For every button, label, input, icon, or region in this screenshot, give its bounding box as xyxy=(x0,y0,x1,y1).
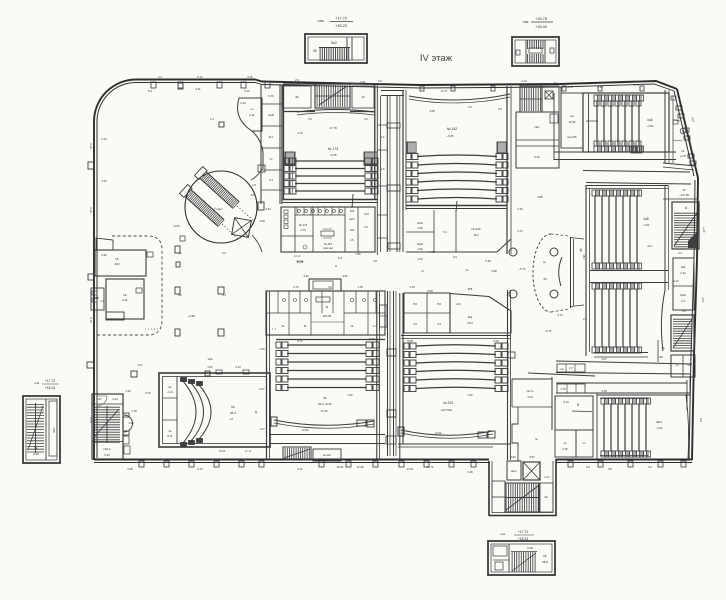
svg-text:2.4: 2.4 xyxy=(269,178,273,182)
svg-text:~4.52: ~4.52 xyxy=(656,426,663,430)
svg-text:1.2: 1.2 xyxy=(381,135,385,139)
svg-text:~14.5 62м: ~14.5 62м xyxy=(440,408,453,412)
svg-text:5.71: 5.71 xyxy=(167,434,173,438)
svg-text:13.96: 13.96 xyxy=(302,428,309,432)
svg-text:ж: ж xyxy=(335,264,337,268)
svg-text:2.25: 2.25 xyxy=(33,452,39,456)
svg-text:6.67: 6.67 xyxy=(259,387,265,391)
svg-text:№ 142: № 142 xyxy=(447,127,457,131)
svg-text:3.18: 3.18 xyxy=(597,85,603,89)
svg-text:152: 152 xyxy=(350,228,355,232)
svg-text:№6: №6 xyxy=(647,118,652,122)
svg-text:5.13: 5.13 xyxy=(563,400,569,404)
svg-text:~4.52: ~4.52 xyxy=(643,223,650,227)
svg-text:4.34: 4.34 xyxy=(101,179,107,183)
svg-text:26: 26 xyxy=(662,346,665,350)
svg-text:№9: №9 xyxy=(681,265,686,269)
svg-text:4.07: 4.07 xyxy=(250,193,256,197)
svg-text:2.11: 2.11 xyxy=(249,113,255,117)
svg-text:со: со xyxy=(270,158,273,161)
svg-text:5.8: 5.8 xyxy=(682,309,686,313)
svg-text:13.91: 13.91 xyxy=(407,467,414,471)
svg-text:6.70: 6.70 xyxy=(197,467,203,471)
svg-text:2.4: 2.4 xyxy=(678,251,682,255)
svg-text:1.53: 1.53 xyxy=(363,212,369,216)
svg-text:тд: тд xyxy=(543,261,546,264)
svg-text:16.44: 16.44 xyxy=(337,465,344,469)
svg-text:2.46: 2.46 xyxy=(517,207,523,211)
svg-text:2.11: 2.11 xyxy=(122,298,128,302)
svg-text:отм.: отм. xyxy=(317,19,324,23)
svg-text:+18.25: +18.25 xyxy=(45,386,55,390)
svg-text:~9: ~9 xyxy=(420,269,424,273)
svg-text:№17: №17 xyxy=(349,217,355,221)
svg-text:2.43: 2.43 xyxy=(235,365,241,369)
svg-text:5.0: 5.0 xyxy=(699,418,703,422)
svg-text:4.8: 4.8 xyxy=(373,259,377,263)
svg-text:ПЗ: ПЗ xyxy=(413,302,417,306)
svg-text:№: № xyxy=(169,386,172,389)
svg-text:1.9: 1.9 xyxy=(100,299,104,303)
svg-text:№ 243: № 243 xyxy=(471,227,480,231)
svg-text:5.40: 5.40 xyxy=(534,155,540,159)
svg-text:204.06: 204.06 xyxy=(323,314,332,318)
svg-text:№ 173: № 173 xyxy=(299,223,308,227)
svg-text:4.1: 4.1 xyxy=(222,293,226,297)
svg-text:ПЗ: ПЗ xyxy=(437,302,441,306)
svg-text:2.10: 2.10 xyxy=(101,137,107,141)
svg-text:№-2.56: №-2.56 xyxy=(567,135,577,139)
svg-text:36.9: 36.9 xyxy=(542,560,548,564)
svg-text:5.43: 5.43 xyxy=(89,417,93,423)
svg-text:~9.45: ~9.45 xyxy=(329,153,337,157)
svg-text:3.3: 3.3 xyxy=(364,117,368,121)
svg-text:5.4: 5.4 xyxy=(338,256,342,260)
svg-text:№: № xyxy=(231,405,235,409)
svg-text:5.4: 5.4 xyxy=(148,89,152,93)
svg-text:п5: п5 xyxy=(351,238,354,242)
svg-text:1.28: 1.28 xyxy=(128,421,134,425)
svg-text:3.0: 3.0 xyxy=(328,285,332,289)
svg-text:4.92: 4.92 xyxy=(342,274,348,278)
svg-text:4.33: 4.33 xyxy=(303,274,309,278)
svg-text:+17.72: +17.72 xyxy=(335,17,347,21)
svg-text:+4.57: +4.57 xyxy=(680,154,687,158)
svg-text:№31: №31 xyxy=(417,221,424,225)
svg-text:5.0: 5.0 xyxy=(308,117,312,121)
svg-text:+16.75: +16.75 xyxy=(535,17,547,21)
svg-text:№3.2: №3.2 xyxy=(104,447,111,451)
svg-text:1.07: 1.07 xyxy=(259,427,265,431)
svg-text:2.17: 2.17 xyxy=(544,475,550,479)
svg-text:5.76: 5.76 xyxy=(145,391,151,395)
svg-text:17.76: 17.76 xyxy=(329,126,337,130)
svg-text:9.11: 9.11 xyxy=(297,467,303,471)
svg-text:4.08: 4.08 xyxy=(259,219,265,223)
svg-text:тех: тех xyxy=(570,114,575,118)
svg-text:№: № xyxy=(323,396,327,400)
svg-text:18: 18 xyxy=(254,411,258,414)
svg-text:8а: 8а xyxy=(179,293,182,297)
svg-text:3.44: 3.44 xyxy=(527,395,533,399)
svg-text:1.40: 1.40 xyxy=(455,302,461,306)
svg-text:4.07: 4.07 xyxy=(601,357,607,361)
svg-text:5.16: 5.16 xyxy=(244,89,250,93)
svg-text:4.30: 4.30 xyxy=(347,393,353,397)
svg-text:~5.75: ~5.75 xyxy=(545,329,552,333)
svg-text:4.76: 4.76 xyxy=(557,313,563,317)
svg-text:1.78: 1.78 xyxy=(357,285,363,289)
svg-text:№ 121: № 121 xyxy=(323,453,332,457)
svg-text:17.02: 17.02 xyxy=(321,409,328,413)
svg-text:6.50: 6.50 xyxy=(493,339,499,343)
svg-text:№: № xyxy=(351,325,354,328)
svg-text:18.4: 18.4 xyxy=(582,254,586,260)
svg-text:5.15: 5.15 xyxy=(247,75,253,79)
svg-text:№2: №2 xyxy=(331,41,337,45)
svg-text:5.43: 5.43 xyxy=(104,453,110,457)
svg-text:15.2: 15.2 xyxy=(473,233,479,237)
svg-text:1.86: 1.86 xyxy=(52,427,56,433)
svg-text:14.1: 14.1 xyxy=(268,135,274,139)
svg-text:~4.52: ~4.52 xyxy=(647,124,654,128)
svg-text:2.14: 2.14 xyxy=(167,390,173,394)
svg-text:2.7: 2.7 xyxy=(569,366,573,370)
svg-text:5.0: 5.0 xyxy=(586,465,590,469)
svg-text:+18.40: +18.40 xyxy=(535,25,547,29)
svg-text:№: № xyxy=(543,554,547,558)
svg-text:5.0: 5.0 xyxy=(378,79,382,83)
svg-text:№: № xyxy=(682,150,685,153)
svg-text:36: 36 xyxy=(313,49,317,53)
svg-text:26.9: 26.9 xyxy=(467,321,473,325)
svg-text:26: 26 xyxy=(544,277,547,281)
svg-text:~5.75: ~5.75 xyxy=(519,267,526,271)
svg-text:№: № xyxy=(282,325,285,328)
svg-text:4.66: 4.66 xyxy=(417,247,423,251)
svg-text:9.0: 9.0 xyxy=(453,255,457,259)
svg-text:4.08: 4.08 xyxy=(429,109,435,113)
svg-text:~4.05: ~4.05 xyxy=(172,224,180,228)
svg-text:84.2: 84.2 xyxy=(230,411,236,415)
svg-text:2.4: 2.4 xyxy=(681,299,685,303)
svg-text:2.75: 2.75 xyxy=(562,447,568,451)
svg-text:IV этаж: IV этаж xyxy=(420,53,453,64)
svg-text:5.71: 5.71 xyxy=(297,339,303,343)
svg-text:4.30: 4.30 xyxy=(467,393,473,397)
svg-text:2.12: 2.12 xyxy=(680,271,686,275)
svg-text:4.67: 4.67 xyxy=(137,363,143,367)
svg-text:23м: 23м xyxy=(208,357,213,361)
svg-text:8а: 8а xyxy=(295,95,299,99)
svg-text:4.67: 4.67 xyxy=(96,397,102,401)
svg-text:пом.зал: пом.зал xyxy=(323,247,333,250)
svg-text:2.3: 2.3 xyxy=(583,317,587,321)
svg-text:№: № xyxy=(34,446,38,450)
svg-text:са: са xyxy=(466,269,469,272)
svg-text:5.48: 5.48 xyxy=(127,467,133,471)
svg-text:2.0: 2.0 xyxy=(381,167,385,171)
svg-text:№ 243: № 243 xyxy=(443,401,453,405)
svg-text:отм.: отм. xyxy=(500,532,506,536)
svg-text:2.12: 2.12 xyxy=(673,279,679,283)
svg-text:+18.23: +18.23 xyxy=(518,537,528,541)
svg-text:12.56: 12.56 xyxy=(569,120,576,124)
svg-text:23: 23 xyxy=(683,188,686,192)
svg-text:~4.95: ~4.95 xyxy=(187,314,195,318)
svg-text:4.98: 4.98 xyxy=(491,269,497,273)
svg-text:84.3 +9.42: 84.3 +9.42 xyxy=(318,402,332,406)
svg-text:5.1: 5.1 xyxy=(443,230,447,234)
svg-text:№ 215: № 215 xyxy=(324,242,333,246)
svg-text:+18.23: +18.23 xyxy=(335,24,347,28)
svg-text:вент: вент xyxy=(511,470,517,473)
svg-text:2.36: 2.36 xyxy=(101,253,107,257)
svg-text:2.10: 2.10 xyxy=(297,131,303,135)
svg-text:4.2: 4.2 xyxy=(413,322,417,326)
svg-text:14.72: 14.72 xyxy=(427,465,434,469)
svg-text:24.1: 24.1 xyxy=(647,244,653,248)
svg-text:3.4: 3.4 xyxy=(158,75,162,79)
svg-text:~127.96: ~127.96 xyxy=(679,193,689,197)
svg-text:№8: №8 xyxy=(643,217,648,221)
svg-text:№40: №40 xyxy=(268,113,274,117)
svg-text:5.10: 5.10 xyxy=(89,143,93,149)
svg-text:5.76: 5.76 xyxy=(268,94,274,98)
svg-text:5.10: 5.10 xyxy=(89,207,93,213)
svg-text:2.43: 2.43 xyxy=(112,397,118,401)
svg-text:4.62: 4.62 xyxy=(207,365,213,369)
svg-text:№ со: № со xyxy=(527,389,534,393)
svg-text:14.13: 14.13 xyxy=(297,260,304,264)
svg-text:5.4: 5.4 xyxy=(554,81,558,85)
svg-text:5.08: 5.08 xyxy=(407,339,413,343)
svg-text:2.9: 2.9 xyxy=(295,78,299,82)
svg-text:© пант: © пант xyxy=(214,207,223,211)
svg-text:12.11: 12.11 xyxy=(245,449,252,453)
svg-text:2.9: 2.9 xyxy=(252,183,256,187)
svg-text:кл: кл xyxy=(373,325,376,328)
svg-text:4.30: 4.30 xyxy=(259,347,265,351)
svg-text:4.07: 4.07 xyxy=(701,297,705,303)
svg-text:1.98: 1.98 xyxy=(657,355,663,359)
svg-text:№11: №11 xyxy=(656,420,663,424)
svg-text:3.18: 3.18 xyxy=(467,470,473,474)
svg-text:5.12: 5.12 xyxy=(197,75,203,79)
svg-text:4.65: 4.65 xyxy=(417,226,423,230)
svg-text:3.18: 3.18 xyxy=(601,389,607,393)
svg-text:3.3: 3.3 xyxy=(468,105,472,109)
svg-text:5.0: 5.0 xyxy=(648,465,652,469)
svg-text:кл: кл xyxy=(250,107,253,111)
svg-text:18.86: 18.86 xyxy=(219,449,226,453)
svg-text:2.12: 2.12 xyxy=(521,79,527,83)
svg-text:2.76: 2.76 xyxy=(560,387,566,391)
svg-text:4.20: 4.20 xyxy=(417,257,423,261)
svg-text:1.78: 1.78 xyxy=(131,409,137,413)
svg-text:1.70: 1.70 xyxy=(409,285,415,289)
svg-text:№ 173: № 173 xyxy=(328,147,338,151)
svg-text:3.41: 3.41 xyxy=(195,87,201,91)
svg-text:1.29: 1.29 xyxy=(125,389,131,393)
svg-text:258: 258 xyxy=(468,287,473,291)
svg-text:кл: кл xyxy=(583,442,586,445)
svg-text:5.38: 5.38 xyxy=(485,259,491,263)
svg-text:4.70: 4.70 xyxy=(300,228,306,232)
svg-text:№1: №1 xyxy=(535,125,540,129)
svg-text:+17.72: +17.72 xyxy=(45,379,55,383)
svg-text:2.10: 2.10 xyxy=(240,101,246,105)
svg-text:отм.: отм. xyxy=(34,381,40,385)
svg-text:5.78: 5.78 xyxy=(89,317,93,323)
svg-text:№: № xyxy=(561,368,564,371)
svg-text:7.85: 7.85 xyxy=(355,252,361,256)
svg-text:2.8: 2.8 xyxy=(498,107,502,111)
svg-text:4.34: 4.34 xyxy=(265,207,271,211)
svg-text:№10: №10 xyxy=(680,293,687,297)
svg-text:12.98: 12.98 xyxy=(357,465,364,469)
svg-text:4.3: 4.3 xyxy=(437,322,441,326)
svg-text:5.90: 5.90 xyxy=(510,455,516,459)
svg-text:4.74: 4.74 xyxy=(517,229,523,233)
svg-text:5.88: 5.88 xyxy=(537,195,543,199)
svg-text:~17: ~17 xyxy=(229,417,234,421)
svg-text:2.0: 2.0 xyxy=(364,225,368,229)
svg-text:2.76: 2.76 xyxy=(293,285,299,289)
svg-text:~9.45: ~9.45 xyxy=(446,134,454,138)
svg-text:5.08: 5.08 xyxy=(427,289,433,293)
svg-text:№: № xyxy=(169,430,172,433)
svg-text:153: 153 xyxy=(350,209,355,213)
svg-text:та: та xyxy=(535,437,538,441)
svg-text:7.45: 7.45 xyxy=(429,250,435,254)
svg-text:19: 19 xyxy=(361,95,365,99)
svg-text:202: 202 xyxy=(114,262,119,266)
svg-text:17.4: 17.4 xyxy=(633,83,639,87)
svg-text:№32: №32 xyxy=(417,242,424,246)
svg-text:6.0: 6.0 xyxy=(222,251,226,255)
svg-text:+17.72: +17.72 xyxy=(518,530,528,534)
svg-text:5.87: 5.87 xyxy=(529,455,535,459)
svg-text:5.76: 5.76 xyxy=(567,85,573,89)
svg-text:14.13: 14.13 xyxy=(294,254,301,258)
svg-text:17.27: 17.27 xyxy=(441,89,448,93)
svg-text:2.1: 2.1 xyxy=(210,117,214,121)
svg-text:9.8: 9.8 xyxy=(608,467,612,471)
svg-text:8.50: 8.50 xyxy=(369,337,375,341)
svg-text:5.28: 5.28 xyxy=(527,546,533,550)
svg-text:отм.: отм. xyxy=(523,20,530,24)
svg-text:Ж: Ж xyxy=(326,305,329,309)
svg-text:со: со xyxy=(564,442,567,445)
